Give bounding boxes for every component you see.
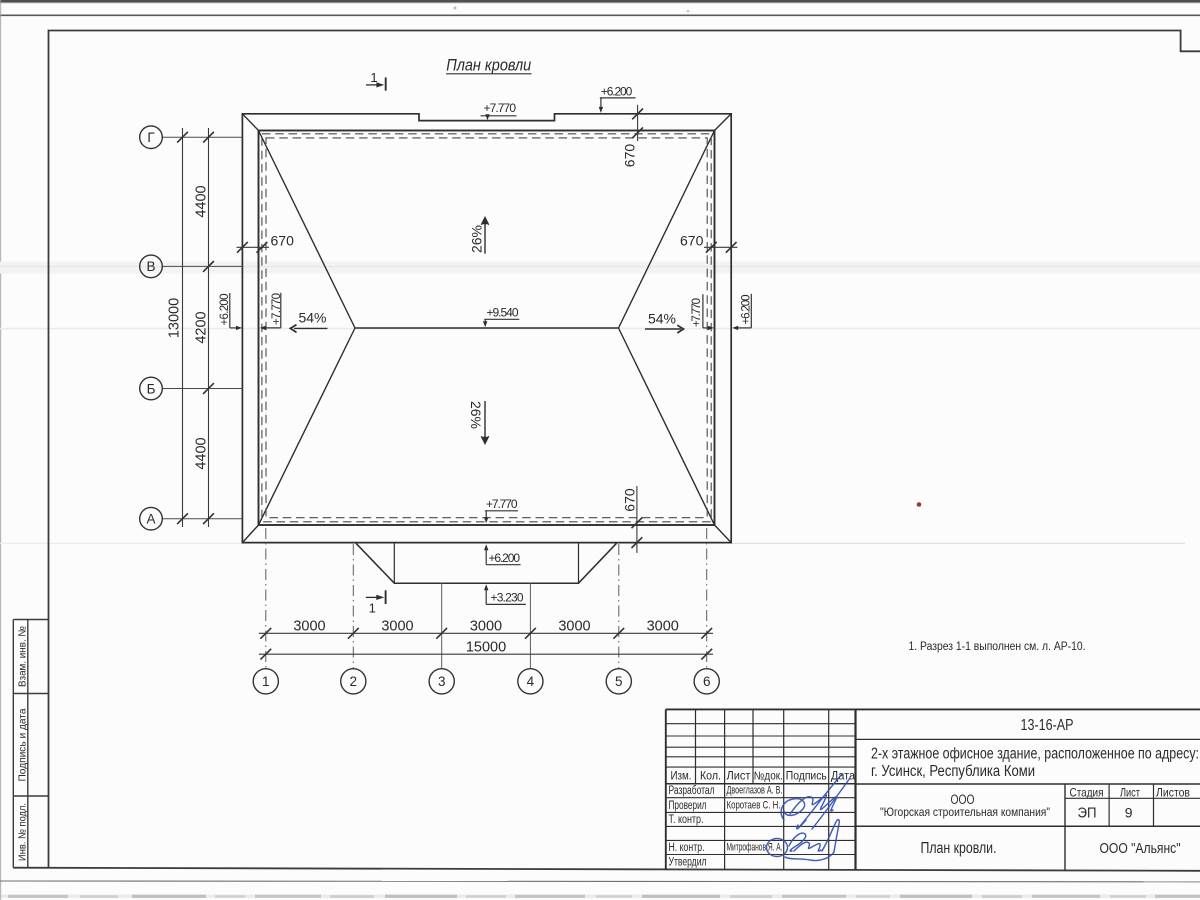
svg-text:+7.770: +7.770 [691, 298, 703, 327]
svg-text:2: 2 [350, 674, 358, 689]
svg-text:+6.200: +6.200 [219, 294, 231, 326]
svg-text:+6.200: +6.200 [489, 551, 521, 565]
svg-text:1: 1 [262, 674, 270, 689]
svg-text:26%: 26% [468, 401, 484, 429]
svg-text:26%: 26% [469, 225, 485, 253]
svg-text:3: 3 [438, 674, 446, 689]
svg-text:Подпись: Подпись [786, 771, 827, 783]
svg-text:А: А [146, 512, 155, 527]
svg-text:Разработал: Разработал [669, 785, 715, 797]
svg-text:4400: 4400 [194, 437, 210, 469]
svg-text:6: 6 [703, 674, 711, 689]
svg-text:54%: 54% [298, 310, 326, 326]
svg-text:670: 670 [271, 233, 295, 249]
svg-text:Подпись и дата: Подпись и дата [17, 708, 29, 781]
svg-text:Кол.: Кол. [700, 771, 721, 783]
svg-text:1: 1 [369, 601, 376, 616]
svg-text:13000: 13000 [167, 298, 183, 338]
svg-text:3000: 3000 [293, 619, 325, 635]
svg-text:9: 9 [1125, 805, 1133, 821]
svg-text:Б: Б [147, 381, 156, 396]
svg-text:В: В [146, 259, 155, 274]
svg-text:3000: 3000 [558, 619, 590, 635]
svg-text:4200: 4200 [194, 311, 210, 343]
svg-text:"Югорская строительная компани: "Югорская строительная компания" [880, 805, 1050, 819]
svg-text:Дата: Дата [831, 771, 856, 783]
svg-text:Митрофанов Я. А.: Митрофанов Я. А. [727, 842, 783, 854]
svg-text:Двоеглазов А. В.: Двоеглазов А. В. [727, 785, 783, 797]
svg-text:3000: 3000 [470, 619, 502, 635]
svg-text:+6.200: +6.200 [601, 84, 633, 98]
svg-text:+7.770: +7.770 [484, 101, 517, 115]
svg-text:+3.230: +3.230 [491, 591, 524, 605]
svg-text:Инв. № подл.: Инв. № подл. [17, 803, 29, 861]
svg-text:3000: 3000 [381, 619, 413, 635]
svg-text:13-16-АР: 13-16-АР [1021, 717, 1074, 734]
svg-text:Т. контр.: Т. контр. [669, 814, 704, 826]
svg-text:Лист: Лист [1120, 785, 1140, 799]
svg-text:3000: 3000 [647, 619, 679, 635]
svg-text:4: 4 [527, 674, 535, 689]
svg-text:Н. контр.: Н. контр. [669, 842, 705, 854]
svg-text:План кровли.: План кровли. [921, 840, 997, 857]
svg-text:54%: 54% [648, 311, 676, 327]
svg-text:1. Разрез 1-1 выполнен см. л.: 1. Разрез 1-1 выполнен см. л. АР-10. [909, 641, 1086, 653]
svg-text:+9.540: +9.540 [487, 305, 519, 319]
svg-text:15000: 15000 [466, 639, 506, 655]
svg-text:Г: Г [147, 130, 155, 145]
svg-text:Утвердил: Утвердил [669, 856, 707, 868]
svg-text:ЭП: ЭП [1078, 805, 1097, 822]
svg-text:2-х этажное офисное здание, ра: 2-х этажное офисное здание, расположенно… [871, 745, 1199, 762]
svg-text:Коротаев С. Н.: Коротаев С. Н. [727, 799, 781, 811]
svg-text:Взам. инв. №: Взам. инв. № [17, 626, 29, 687]
svg-text:670: 670 [680, 233, 704, 249]
svg-text:Стадия: Стадия [1070, 785, 1104, 799]
svg-text:1: 1 [370, 70, 377, 85]
svg-text:+7.770: +7.770 [486, 497, 518, 511]
svg-text:4400: 4400 [194, 185, 210, 217]
svg-text:Лист: Лист [727, 771, 752, 783]
svg-text:г. Усинск, Республика Коми: г. Усинск, Республика Коми [871, 763, 1035, 780]
svg-text:ООО "Альянс": ООО "Альянс" [1100, 840, 1181, 857]
svg-text:Проверил: Проверил [669, 800, 707, 812]
svg-text:Листов: Листов [1156, 785, 1190, 799]
svg-text:670: 670 [622, 488, 638, 512]
svg-text:670: 670 [622, 144, 638, 168]
svg-text:План кровли: План кровли [446, 57, 531, 75]
svg-text:5: 5 [615, 674, 623, 689]
svg-text:Изм.: Изм. [671, 771, 692, 783]
svg-text:№док.: №док. [754, 771, 783, 783]
